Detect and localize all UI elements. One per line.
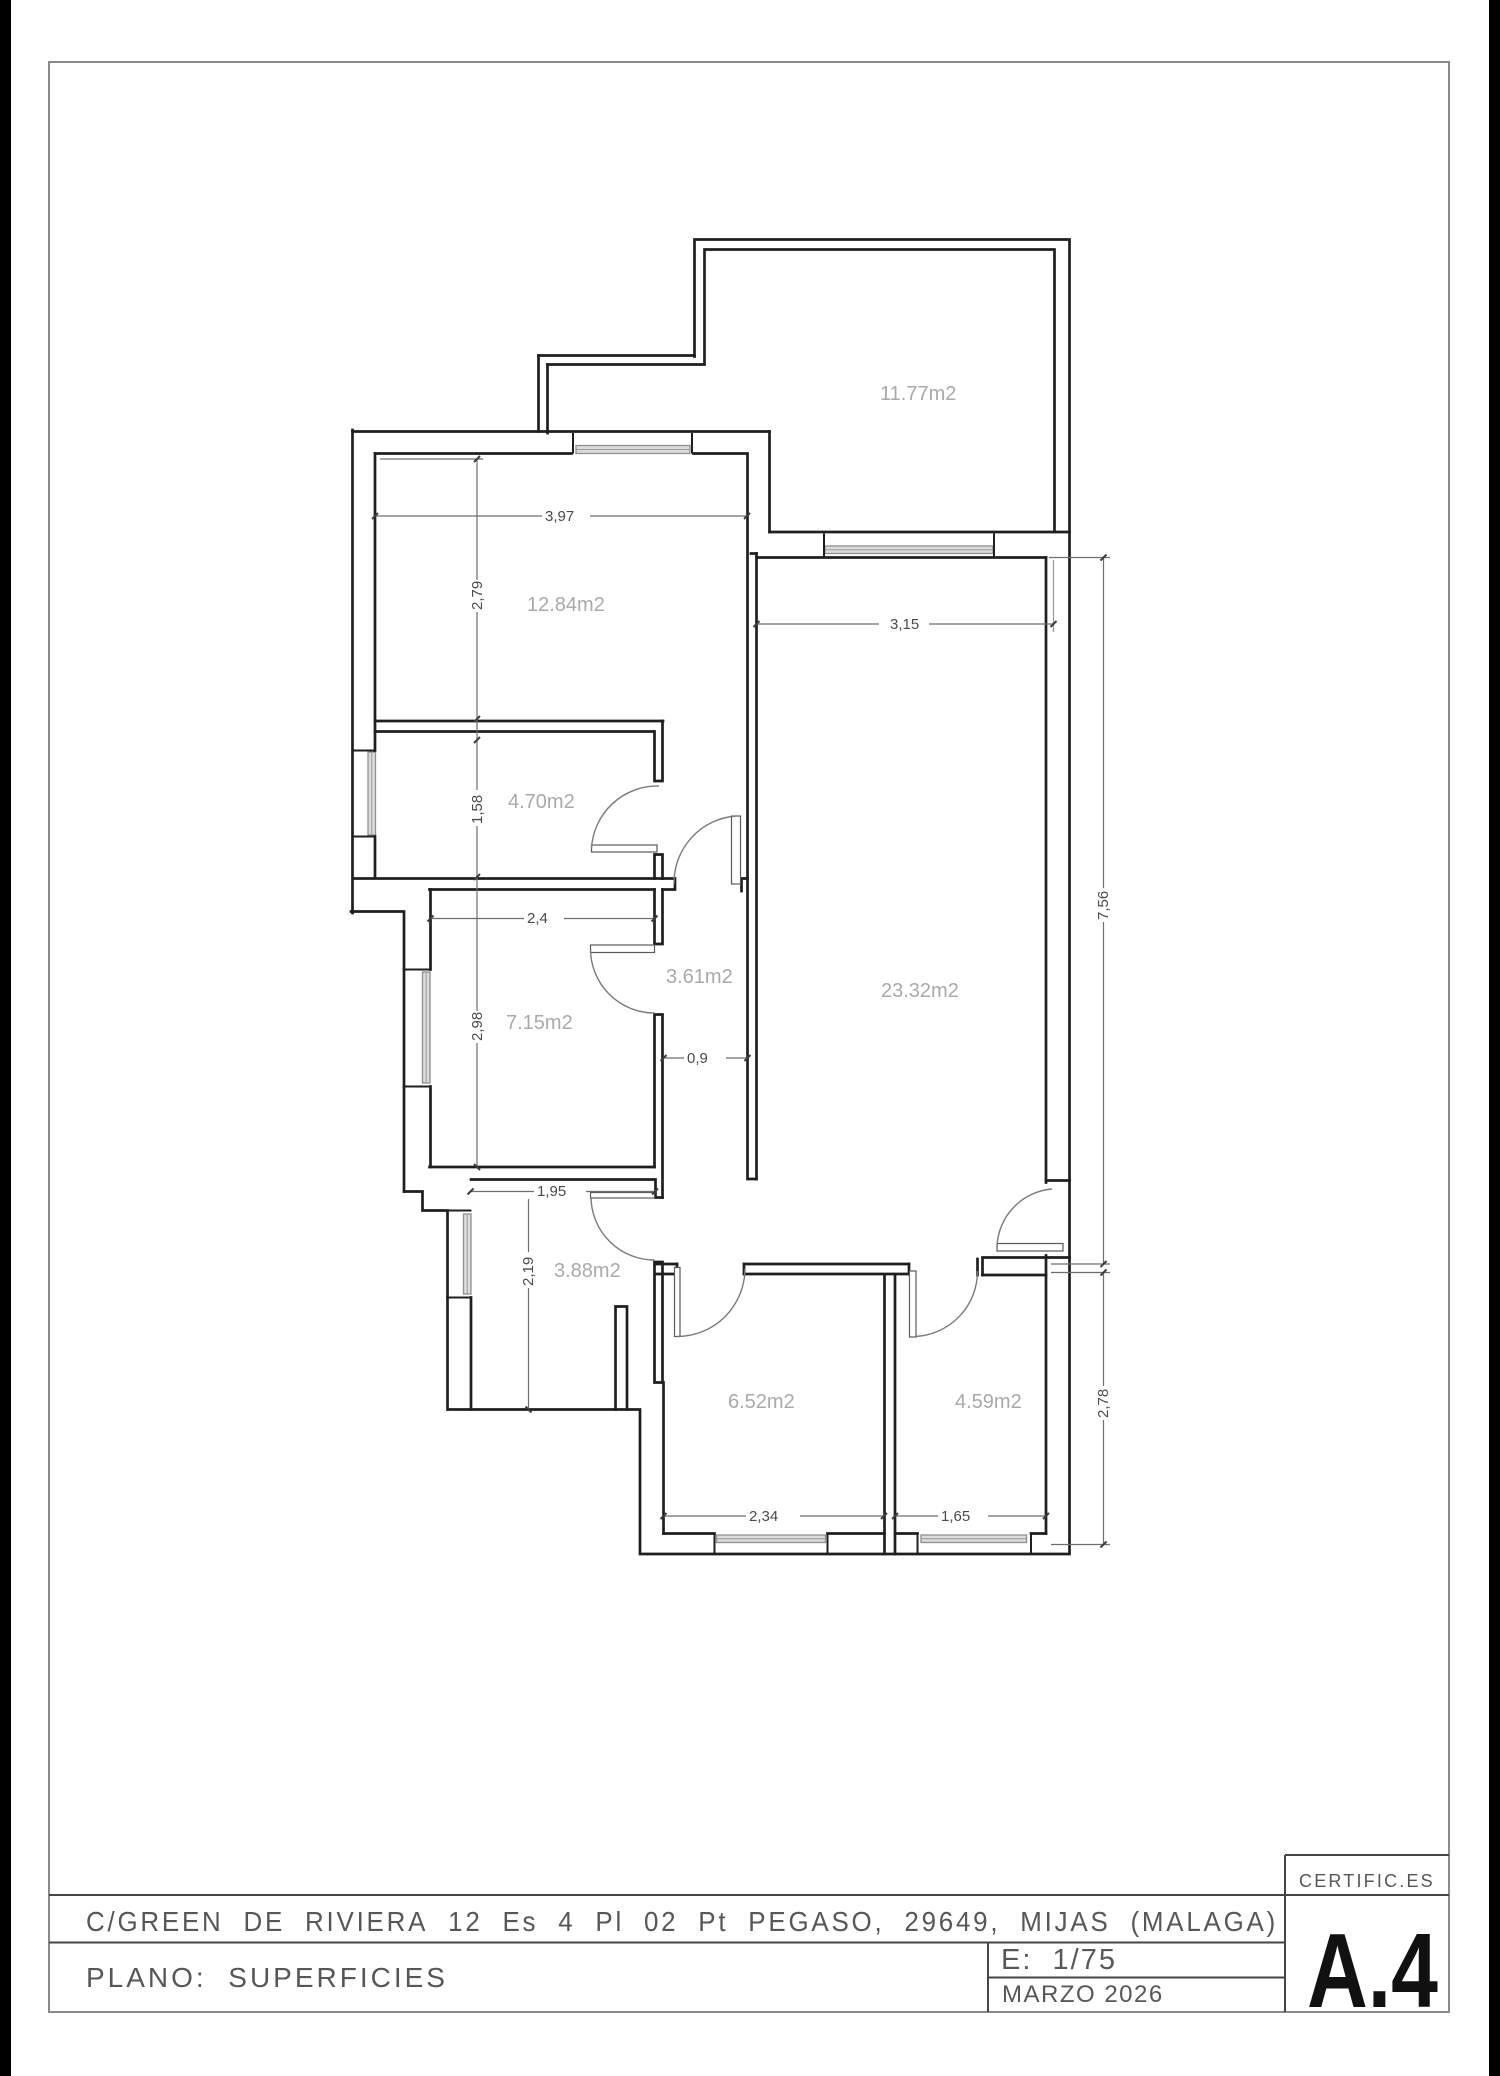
svg-text:MARZO 2026: MARZO 2026 — [1002, 1981, 1164, 2008]
svg-text:4.70m2: 4.70m2 — [508, 791, 575, 813]
svg-text:1,65: 1,65 — [941, 1508, 970, 1525]
svg-text:7,56: 7,56 — [1095, 891, 1112, 920]
svg-text:7.15m2: 7.15m2 — [506, 1012, 573, 1034]
svg-text:1,95: 1,95 — [537, 1183, 566, 1200]
svg-text:6.52m2: 6.52m2 — [728, 1391, 795, 1413]
svg-text:3,15: 3,15 — [890, 616, 919, 633]
svg-text:2,98: 2,98 — [469, 1012, 486, 1041]
svg-text:C/GREEN DE RIVIERA 12 Es: C/GREEN DE RIVIERA 12 Es 4 Pl 02 Pt PEGA… — [86, 1906, 1278, 1937]
svg-text:2,79: 2,79 — [469, 581, 486, 610]
svg-text:2,78: 2,78 — [1095, 1389, 1112, 1418]
svg-text:3,97: 3,97 — [545, 508, 574, 525]
svg-text:12.84m2: 12.84m2 — [527, 594, 605, 616]
svg-text:2,34: 2,34 — [749, 1508, 778, 1525]
svg-text:2,19: 2,19 — [520, 1257, 537, 1286]
svg-text:E: 1/75: E: 1/75 — [1001, 1944, 1117, 1976]
svg-text:PLANO: SUPERFICIES: PLANO: SUPERFICIES — [86, 1962, 448, 1993]
svg-text:3.61m2: 3.61m2 — [666, 966, 733, 988]
svg-text:11.77m2: 11.77m2 — [880, 383, 956, 405]
svg-text:0,9: 0,9 — [687, 1050, 708, 1067]
svg-text:A.4: A.4 — [1307, 1912, 1438, 2030]
svg-text:3.88m2: 3.88m2 — [554, 1260, 621, 1282]
svg-text:CERTIFIC.ES: CERTIFIC.ES — [1299, 1871, 1435, 1891]
svg-text:1,58: 1,58 — [469, 795, 486, 824]
svg-text:2,4: 2,4 — [527, 910, 548, 927]
svg-text:23.32m2: 23.32m2 — [881, 980, 959, 1002]
svg-text:4.59m2: 4.59m2 — [955, 1391, 1022, 1413]
